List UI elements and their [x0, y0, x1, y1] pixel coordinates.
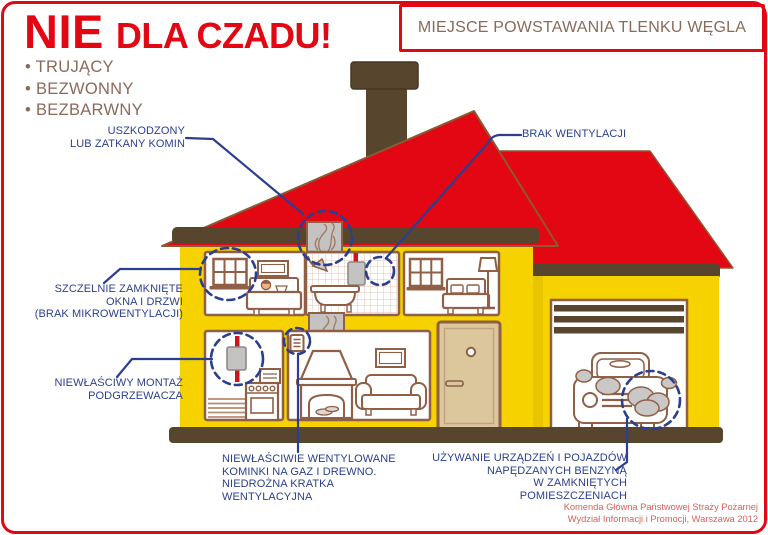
credits-line1: Komenda Główna Państwowej Straży Pożarne…	[458, 502, 758, 514]
bedroom-left	[205, 252, 305, 315]
list-item: • BEZBARWNY	[25, 100, 143, 122]
bed-with-person	[247, 278, 301, 315]
header-box-label: MIEJSCE POWSTAWANIA TLENKU WĘGLA	[418, 19, 746, 37]
stove	[246, 383, 278, 420]
callout-chimney: USZKODZONY LUB ZATKANY KOMIN	[55, 125, 185, 150]
mail-slot	[446, 381, 463, 386]
front-door	[438, 322, 500, 430]
main-roof	[162, 111, 558, 246]
sofa	[356, 375, 426, 415]
cupboard	[260, 369, 280, 383]
header-box: MIEJSCE POWSTAWANIA TLENKU WĘGLA	[399, 4, 765, 52]
callout-fireplace: NIEWŁAŚCIWIE WENTYLOWANE KOMINKI NA GAZ …	[222, 453, 407, 503]
co-properties-list: • TRUJĄCY • BEZWONNY • BEZBARWNY	[25, 57, 143, 122]
callout-ventilation: BRAK WENTYLACJI	[522, 128, 682, 141]
garage	[498, 151, 733, 436]
garage-base	[515, 427, 723, 443]
bedroom-right	[404, 252, 499, 315]
picture-frame	[258, 261, 288, 276]
callout-windows: SZCZELNIE ZAMKNIĘTE OKNA I DRZWI (BRAK M…	[27, 283, 183, 321]
title-word-nie: NIE	[24, 4, 104, 59]
window	[210, 259, 251, 290]
credits-line2: Wydział Informacji i Promocji, Warszawa …	[458, 514, 758, 526]
picture-frame	[376, 349, 405, 367]
vent-grille	[291, 335, 304, 351]
main-eave	[172, 227, 539, 244]
credits: Komenda Główna Państwowej Straży Pożarne…	[458, 502, 758, 525]
house-base	[169, 427, 541, 443]
water-heater-kitchen	[227, 347, 246, 370]
window	[407, 259, 446, 291]
co-hazard-poster: NIE DLA CZADU! • TRUJĄCY • BEZWONNY • BE…	[0, 0, 768, 535]
poster-title: NIE DLA CZADU!	[24, 4, 331, 59]
gas-heater-bathroom	[348, 262, 365, 285]
callout-heater: NIEWŁAŚCIWY MONTAŻ PODGRZEWACZA	[37, 377, 183, 402]
list-item: • TRUJĄCY	[25, 57, 143, 79]
callout-garage: UŻYWANIE URZĄDZEŃ I POJAZDÓW NAPĘDZANYCH…	[427, 452, 627, 502]
door-knob	[467, 348, 475, 356]
list-item: • BEZWONNY	[25, 79, 143, 101]
title-word-rest: DLA CZADU!	[116, 15, 332, 57]
